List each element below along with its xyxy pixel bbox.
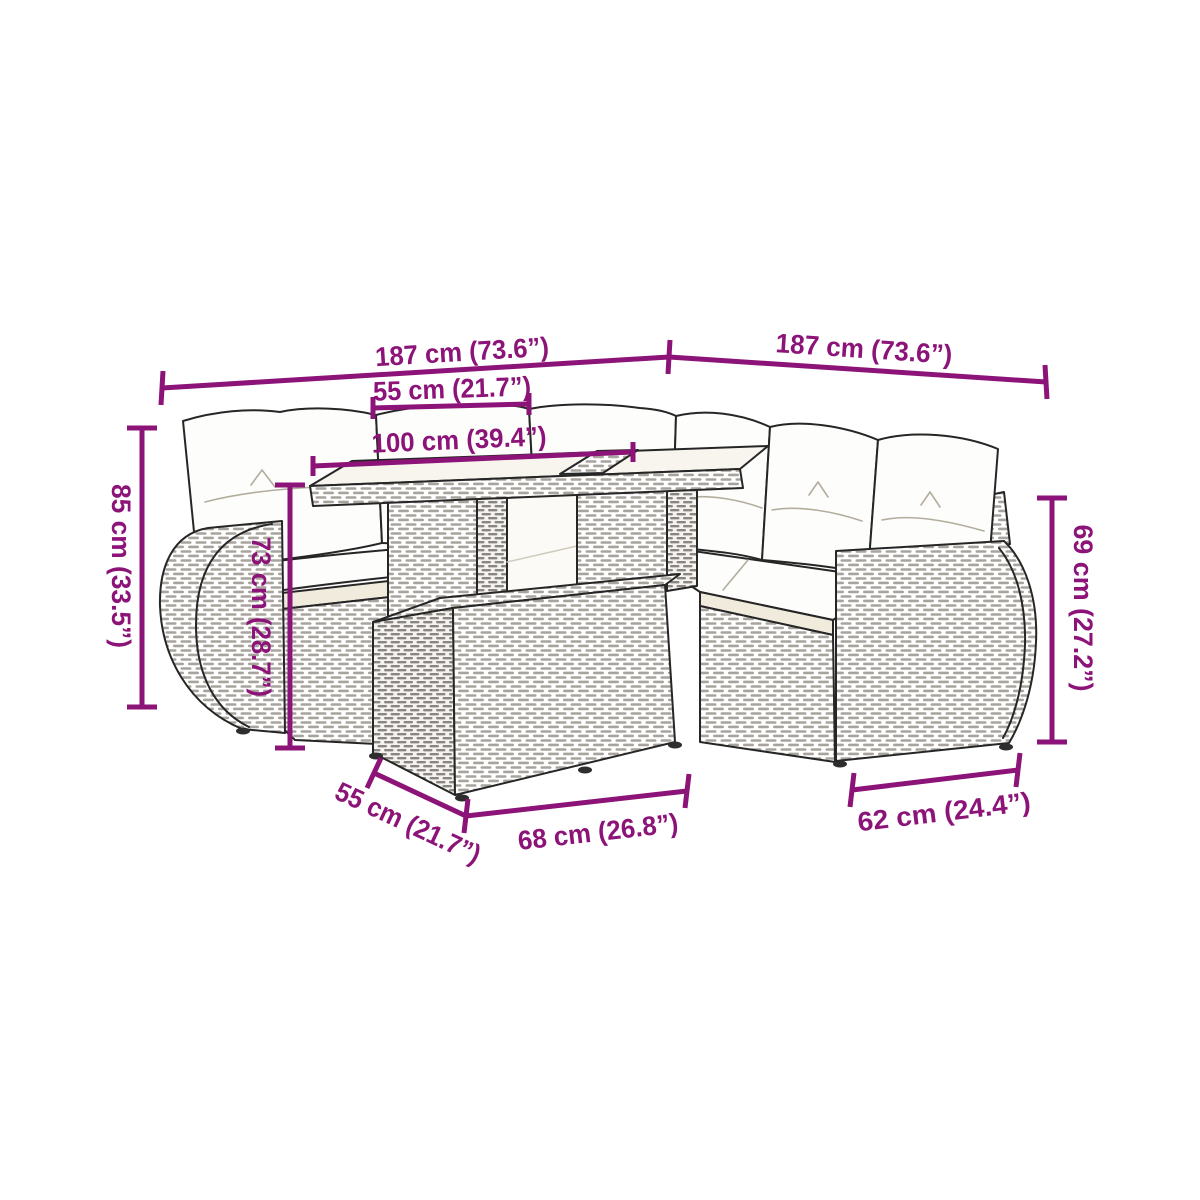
sofa-foot xyxy=(236,728,250,735)
ottoman-front-face xyxy=(453,585,675,795)
product-dimension-diagram: 187 cm (73.6”) 187 cm (73.6”) 55 cm (21.… xyxy=(0,0,1200,1200)
dim-tick xyxy=(1045,365,1047,399)
dim-label-right-vertical: 69 cm (27.2”) xyxy=(1068,525,1098,692)
dim-label-bottom-middle: 68 cm (26.8”) xyxy=(516,808,679,856)
sofa-foot xyxy=(578,767,592,774)
dim-tick xyxy=(685,774,689,808)
diagram-canvas: 187 cm (73.6”) 187 cm (73.6”) 55 cm (21.… xyxy=(0,0,1200,1200)
dim-tick xyxy=(161,371,163,405)
dim-label-bottom-right: 62 cm (24.4”) xyxy=(856,787,1032,838)
dim-label-upper-middle: 55 cm (21.7”) xyxy=(373,371,532,406)
dim-tick xyxy=(464,799,468,833)
dim-label-inner-left-vertical: 73 cm (28.7”) xyxy=(246,537,276,697)
sofa-foot xyxy=(833,761,847,768)
sofa-foot xyxy=(999,744,1013,751)
dim-label-left-vertical: 85 cm (33.5”) xyxy=(106,484,136,648)
dim-tick xyxy=(1016,753,1020,787)
ottoman xyxy=(373,574,680,795)
dim-tick xyxy=(850,773,854,807)
dim-line-bottom-right xyxy=(852,770,1018,790)
armrest-right xyxy=(836,541,1036,761)
sofa-foot xyxy=(668,742,682,749)
ottoman-left-face xyxy=(373,608,455,795)
